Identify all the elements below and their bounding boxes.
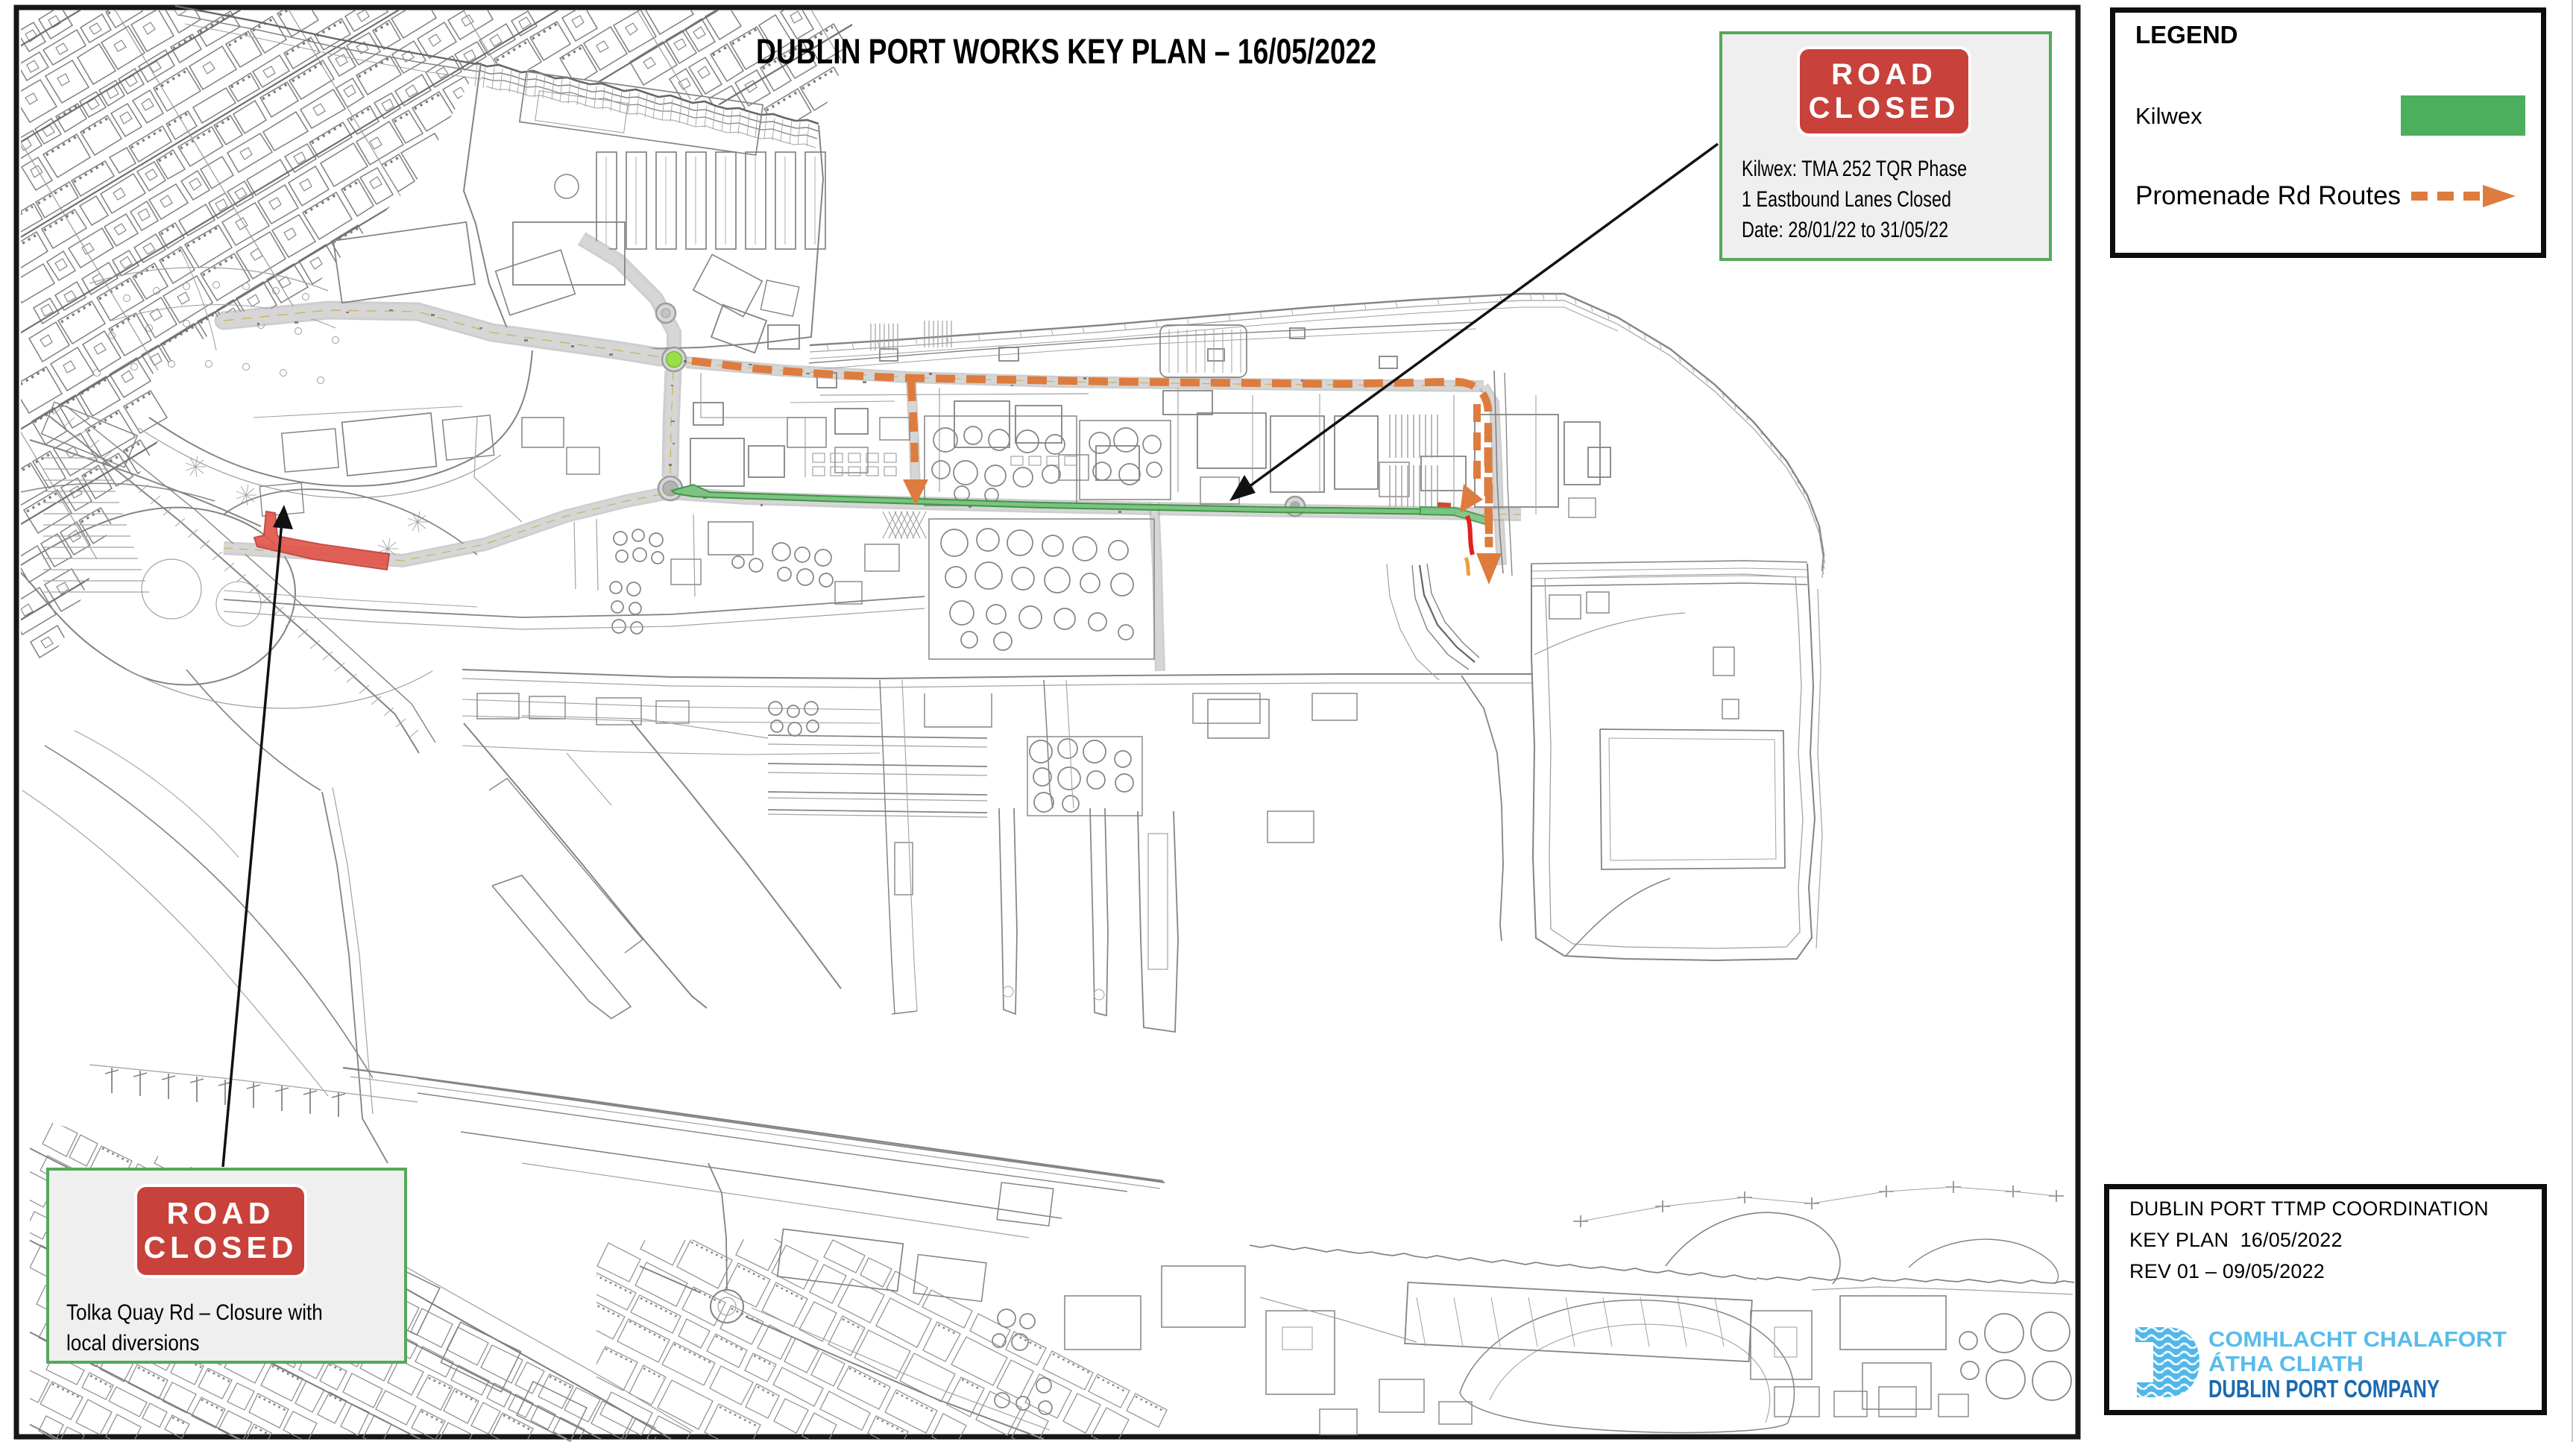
svg-text:COMHLACHT CHALAFORT: COMHLACHT CHALAFORT	[2208, 1328, 2507, 1352]
svg-text:ÁTHA CLIATH: ÁTHA CLIATH	[2208, 1351, 2364, 1376]
svg-text:DUBLIN PORT WORKS KEY PLAN – 1: DUBLIN PORT WORKS KEY PLAN – 16/05/2022	[756, 31, 1376, 71]
svg-text:DUBLIN PORT COMPANY: DUBLIN PORT COMPANY	[2208, 1375, 2440, 1402]
